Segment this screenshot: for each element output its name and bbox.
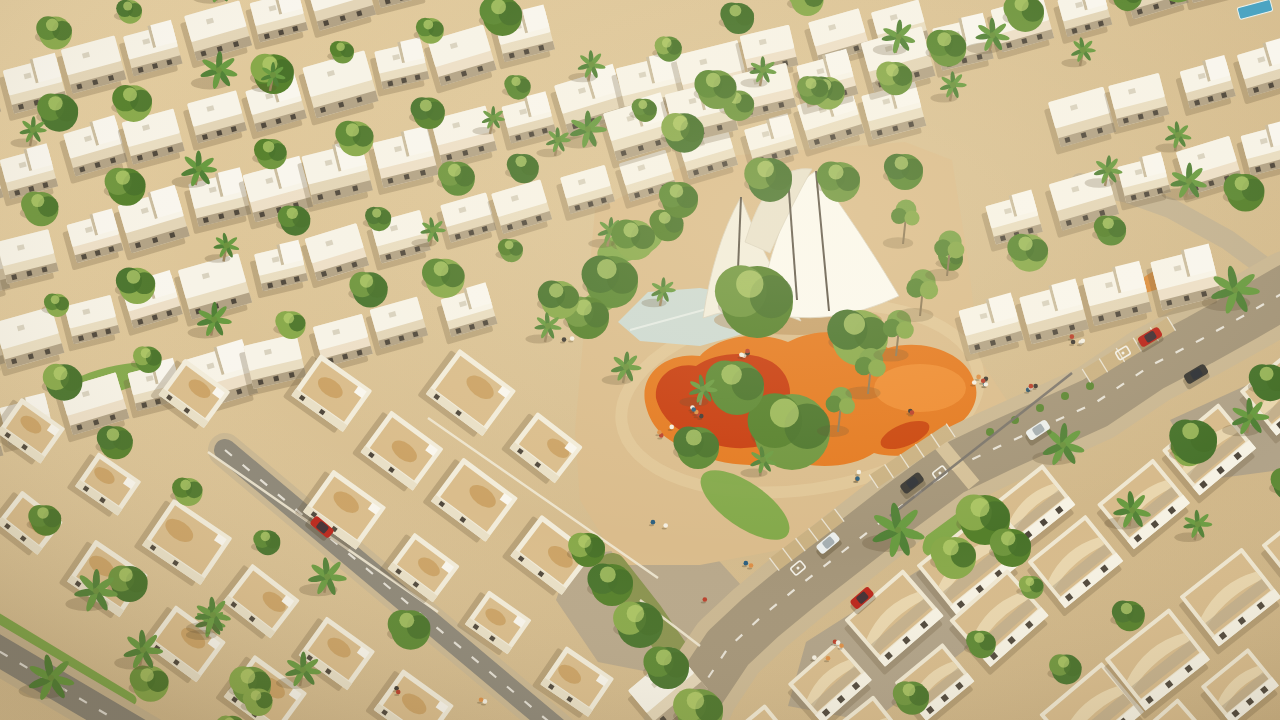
light-vignette xyxy=(0,0,1280,720)
rendering-canvas xyxy=(0,0,1280,720)
aerial-community-rendering xyxy=(0,0,1280,720)
